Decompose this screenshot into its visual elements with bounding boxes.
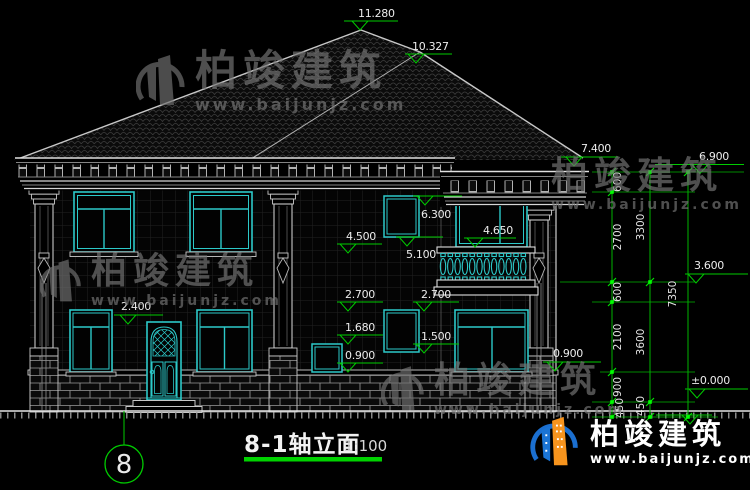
svg-text:6.300: 6.300 <box>421 208 451 221</box>
svg-text:7.400: 7.400 <box>581 142 611 155</box>
drawing-scale: 1:100 <box>344 437 387 455</box>
svg-text:4.500: 4.500 <box>346 230 376 243</box>
dentil-band <box>18 165 452 177</box>
svg-text:11.280: 11.280 <box>358 7 395 20</box>
balcony-top-rail <box>437 247 535 253</box>
window-toilet-small <box>312 344 342 372</box>
svg-text:±0.000: ±0.000 <box>691 374 730 387</box>
window-stair-lower <box>384 310 419 352</box>
svg-text:0.900: 0.900 <box>345 349 375 362</box>
window-sill <box>186 252 256 257</box>
dim-3300: 3300 <box>635 214 647 241</box>
window-stair-upper <box>384 196 419 237</box>
title-underline <box>244 457 382 462</box>
level-marker-foundation <box>656 415 712 424</box>
dimension-texts: 600 2700 600 2100 900 450 3300 3600 450 … <box>612 172 679 418</box>
cornice-main <box>15 158 455 191</box>
balcony-bottom-rail <box>437 280 535 287</box>
dim-450-inner: 450 <box>614 398 626 418</box>
level-marker-floor-2f: 3.600 <box>685 259 748 283</box>
dim-600-top: 600 <box>612 172 624 192</box>
window-sill <box>193 372 256 376</box>
svg-text:10.327: 10.327 <box>412 40 449 53</box>
svg-text:1.500: 1.500 <box>421 330 451 343</box>
svg-text:3.600: 3.600 <box>694 259 724 272</box>
window-1f-right <box>455 310 528 372</box>
axis-bubble-8: 8 <box>105 411 143 483</box>
dim-600-mid: 600 <box>612 282 624 302</box>
dim-3600: 3600 <box>635 329 647 356</box>
window-sill <box>451 372 532 376</box>
svg-text:1.680: 1.680 <box>345 321 375 334</box>
cad-elevation-viewport: 11.280 10.327 7.400 6.900 6.300 5.100 4.… <box>0 0 750 490</box>
window-2f-left-1 <box>74 192 134 252</box>
svg-text:0.900: 0.900 <box>553 347 583 360</box>
svg-text:4.650: 4.650 <box>483 224 513 237</box>
axis-number: 8 <box>116 450 133 480</box>
door-arch-lattice <box>153 330 175 357</box>
window-sill <box>66 372 116 376</box>
window-sill <box>70 252 138 257</box>
dim-900: 900 <box>612 377 624 397</box>
elevation-drawing: 11.280 10.327 7.400 6.900 6.300 5.100 4.… <box>0 0 750 490</box>
level-marker-ridge-main: 11.280 <box>344 7 398 30</box>
svg-text:6.900: 6.900 <box>699 150 729 163</box>
entry-door <box>147 322 181 400</box>
window-2f-left-2 <box>190 192 252 252</box>
window-1f-left-1 <box>70 310 112 372</box>
svg-text:2.700: 2.700 <box>345 288 375 301</box>
dentil-band <box>443 181 586 193</box>
dim-450-middle: 450 <box>635 396 647 416</box>
drawing-title-block: 8-1轴立面 1:100 <box>244 431 387 462</box>
svg-text:5.100: 5.100 <box>406 248 436 261</box>
svg-text:2.700: 2.700 <box>421 288 451 301</box>
window-1f-left-2 <box>197 310 252 372</box>
level-marker-ground-floor: ±0.000 <box>685 374 748 398</box>
dim-2100: 2100 <box>612 324 624 351</box>
dim-7350: 7350 <box>667 281 679 308</box>
level-marker-eave-side: 6.900 <box>655 150 744 174</box>
hip-roof <box>15 30 583 160</box>
dim-2700: 2700 <box>612 224 624 251</box>
cornice-right <box>440 171 590 206</box>
svg-text:2.400: 2.400 <box>121 300 151 313</box>
